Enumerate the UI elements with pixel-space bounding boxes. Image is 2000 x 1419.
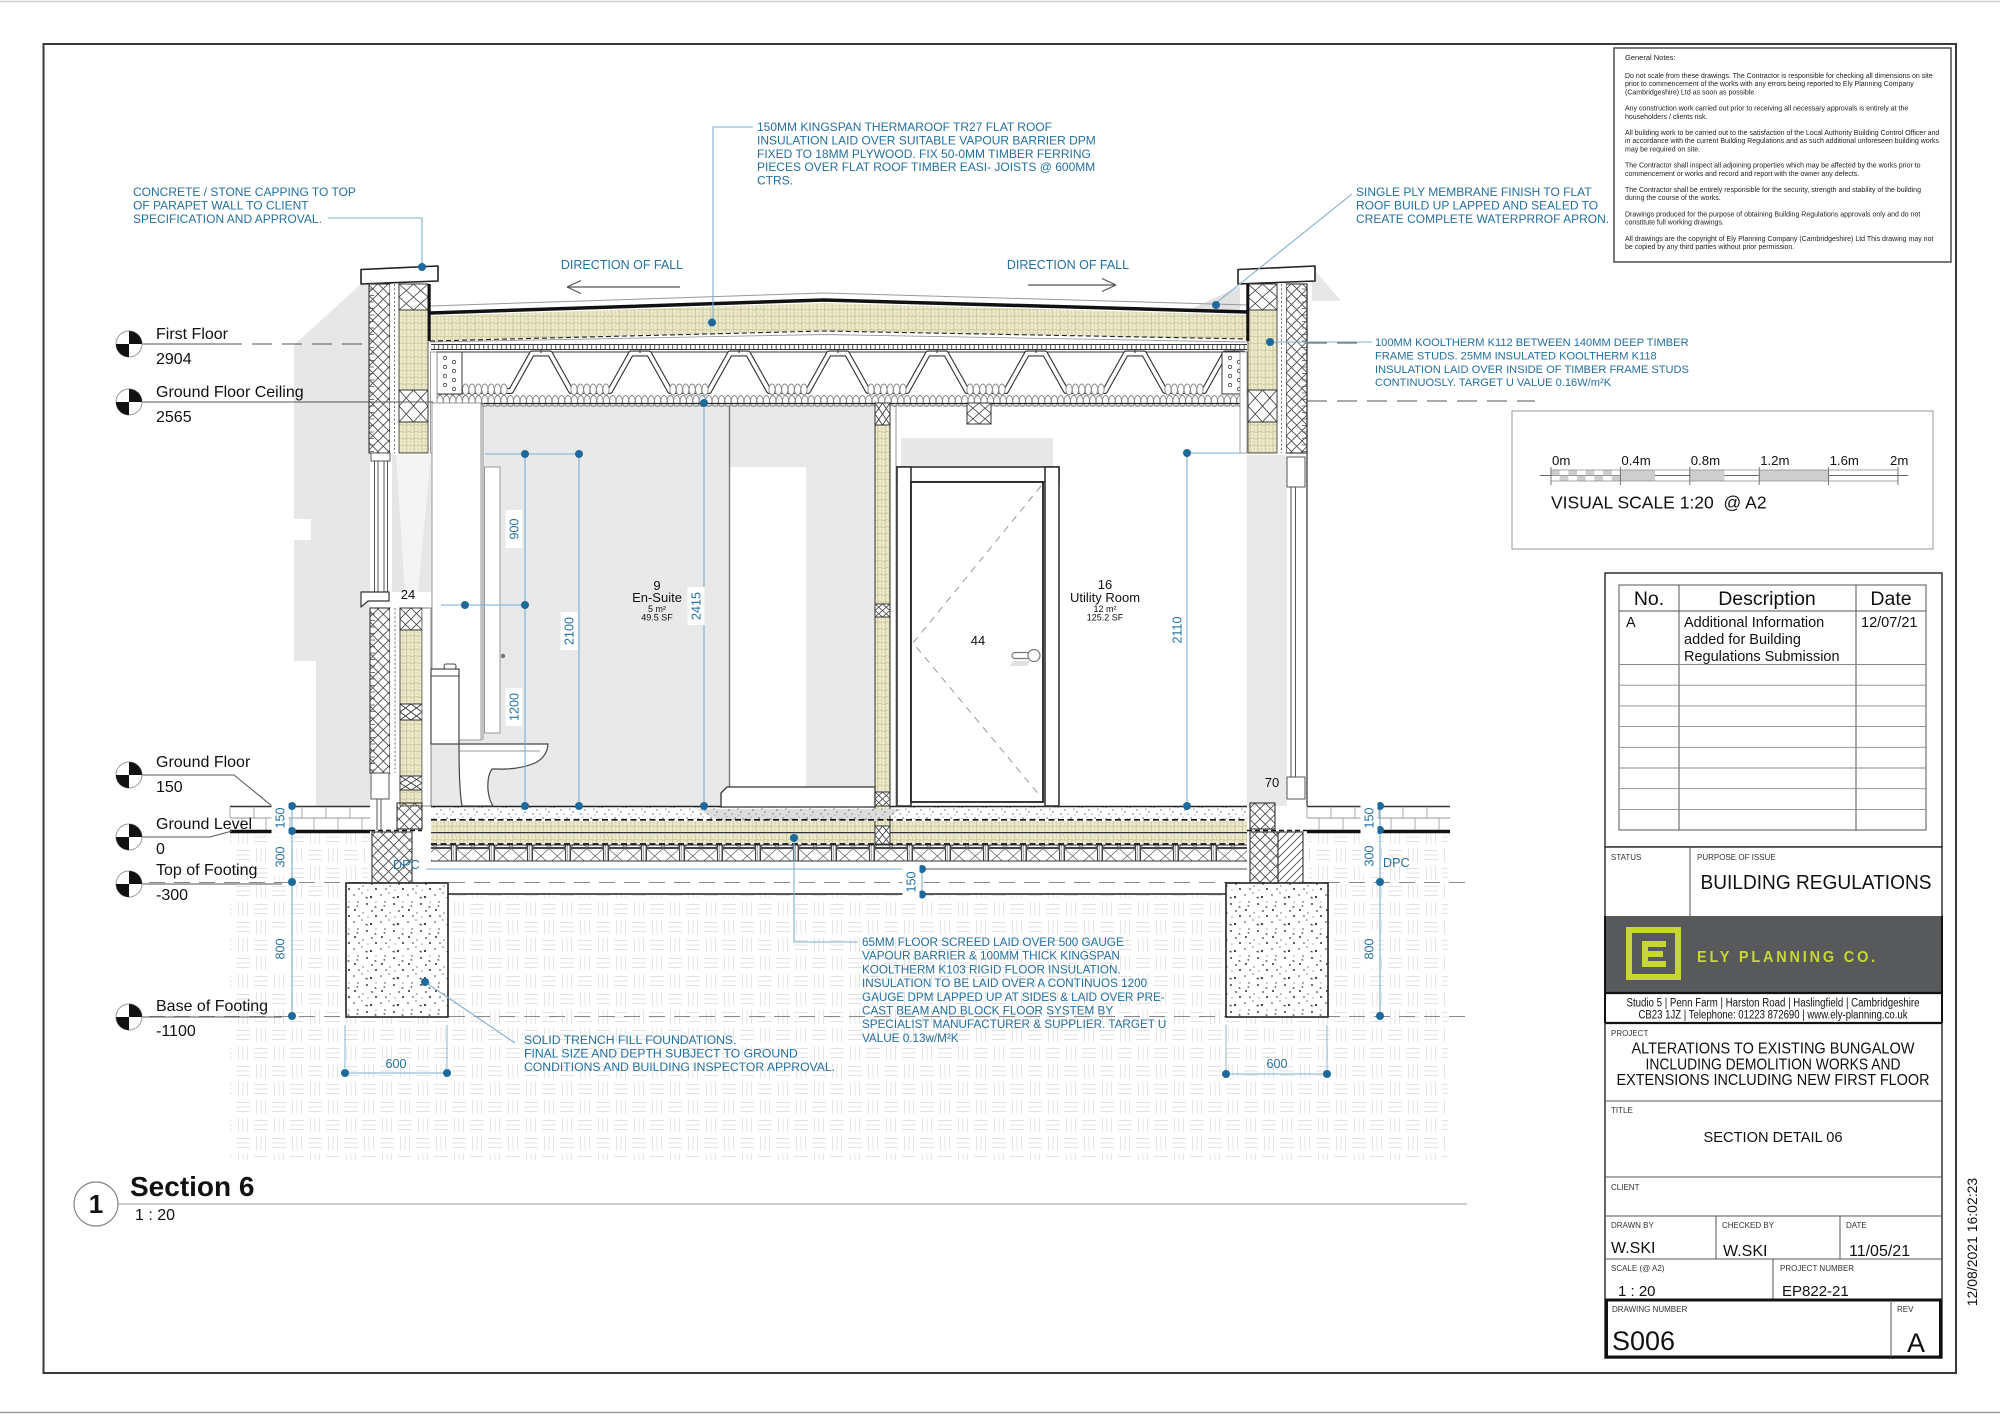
svg-text:600: 600 [1266,1057,1287,1071]
svg-text:may be required on site.: may be required on site. [1625,146,1700,153]
svg-text:300: 300 [274,846,288,867]
svg-text:FINAL SIZE AND DEPTH SUBJECT T: FINAL SIZE AND DEPTH SUBJECT TO GROUND [524,1047,798,1061]
svg-text:A: A [1907,1328,1925,1358]
svg-text:Do not scale from these drawin: Do not scale from these drawings. The Co… [1625,73,1933,80]
svg-text:12/07/21: 12/07/21 [1861,615,1917,631]
svg-text:VALUE 0.13w/M²K: VALUE 0.13w/M²K [862,1032,959,1045]
svg-text:W.SKI: W.SKI [1611,1240,1655,1257]
svg-text:150: 150 [905,871,919,892]
svg-text:INSULATION LAID OVER SUITABLE: INSULATION LAID OVER SUITABLE VAPOUR BAR… [757,133,1096,147]
svg-text:12/08/2021 16:02:23: 12/08/2021 16:02:23 [1964,1178,1980,1307]
svg-text:DPC: DPC [393,858,420,872]
svg-text:PROJECT NUMBER: PROJECT NUMBER [1780,1264,1854,1273]
svg-text:Regulations Submission: Regulations Submission [1684,649,1840,665]
svg-text:CREATE COMPLETE WATERPRROF APR: CREATE COMPLETE WATERPRROF APRON. [1356,212,1609,226]
svg-text:DPC: DPC [1383,856,1410,870]
svg-text:OF PARAPET WALL TO CLIENT: OF PARAPET WALL TO CLIENT [133,198,309,212]
svg-text:800: 800 [274,938,288,959]
svg-text:First Floor: First Floor [156,326,229,343]
svg-text:24: 24 [401,587,415,602]
svg-text:2565: 2565 [156,409,192,426]
svg-text:CLIENT: CLIENT [1611,1183,1640,1192]
svg-text:CTRS.: CTRS. [757,174,793,188]
svg-text:The Contractor shall be entire: The Contractor shall be entirely respons… [1625,187,1921,194]
svg-text:ELY PLANNING CO.: ELY PLANNING CO. [1697,949,1878,966]
svg-text:Ground Level: Ground Level [156,816,252,833]
svg-text:44: 44 [971,633,985,648]
svg-text:householders / clients risk.: householders / clients risk. [1625,114,1708,121]
svg-text:SCALE (@ A2): SCALE (@ A2) [1611,1264,1665,1273]
svg-text:DATE: DATE [1846,1221,1867,1230]
svg-text:SOLID TRENCH FILL FOUNDATIONS.: SOLID TRENCH FILL FOUNDATIONS. [524,1033,736,1047]
svg-text:2110: 2110 [1171,616,1185,643]
svg-text:2415: 2415 [690,592,704,620]
svg-text:2100: 2100 [563,617,577,645]
svg-text:1.6m: 1.6m [1830,453,1859,468]
svg-text:CONCRETE / STONE CAPPING TO TO: CONCRETE / STONE CAPPING TO TOP [133,185,356,199]
svg-text:constitute full working drawin: constitute full working drawings. [1625,220,1724,227]
svg-text:0.8m: 0.8m [1691,453,1720,468]
svg-text:SECTION DETAIL 06: SECTION DETAIL 06 [1704,1129,1843,1146]
svg-text:0m: 0m [1552,453,1570,468]
svg-text:125.2 SF: 125.2 SF [1087,613,1124,623]
svg-text:INSULATION LAID OVER INSIDE OF: INSULATION LAID OVER INSIDE OF TIMBER FR… [1375,364,1689,376]
svg-text:SPECIFICATION AND APPROVAL.: SPECIFICATION AND APPROVAL. [133,212,322,226]
svg-text:in accordance with the current: in accordance with the current Building … [1625,138,1940,145]
svg-text:SINGLE PLY MEMBRANE FINISH TO: SINGLE PLY MEMBRANE FINISH TO FLAT [1356,185,1592,199]
svg-text:1 : 20: 1 : 20 [1618,1283,1656,1300]
svg-text:W.SKI: W.SKI [1723,1243,1767,1260]
svg-text:11/05/21: 11/05/21 [1849,1243,1910,1260]
svg-text:INCLUDING DEMOLITION WORKS AND: INCLUDING DEMOLITION WORKS AND [1646,1057,1901,1074]
svg-text:added for Building: added for Building [1684,632,1801,648]
svg-text:BUILDING REGULATIONS: BUILDING REGULATIONS [1701,871,1932,894]
svg-text:VISUAL SCALE 1:20 @ A2: VISUAL SCALE 1:20 @ A2 [1551,493,1767,513]
svg-text:Description: Description [1718,588,1816,610]
svg-text:DIRECTION OF FALL: DIRECTION OF FALL [1007,258,1129,272]
svg-text:All drawings are the copyright: All drawings are the copyright of Ely Pl… [1625,236,1933,243]
svg-text:ALTERATIONS TO EXISTING BUNGAL: ALTERATIONS TO EXISTING BUNGALOW [1632,1041,1916,1058]
svg-text:FRAME STUDS. 25MM INSULATED KO: FRAME STUDS. 25MM INSULATED KOOLTHERM K1… [1375,350,1657,362]
svg-text:1200: 1200 [508,693,522,721]
svg-text:The Contractor shall inspect a: The Contractor shall inspect all adjoini… [1625,163,1921,170]
svg-text:PIECES OVER FLAT ROOF TIMBER E: PIECES OVER FLAT ROOF TIMBER EASI- JOIST… [757,160,1095,174]
svg-text:-300: -300 [156,887,188,904]
svg-text:VAPOUR BARRIER & 100MM THICK K: VAPOUR BARRIER & 100MM THICK KINGSPAN [862,950,1120,963]
svg-text:EXTENSIONS INCLUDING NEW FIRST: EXTENSIONS INCLUDING NEW FIRST FLOOR [1617,1072,1930,1089]
svg-text:1 : 20: 1 : 20 [135,1207,175,1224]
svg-text:(Cambridgeshire) Ltd as soon a: (Cambridgeshire) Ltd as soon as possible… [1625,89,1756,96]
svg-text:Studio 5 | Penn Farm | Harston: Studio 5 | Penn Farm | Harston Road | Ha… [1627,998,1920,1010]
svg-text:800: 800 [1363,938,1377,959]
svg-text:commencement or works and reco: commencement or works and record and rep… [1625,171,1859,178]
svg-text:S006: S006 [1612,1326,1675,1356]
svg-text:150: 150 [1363,807,1377,828]
svg-text:0: 0 [156,841,165,858]
svg-text:-1100: -1100 [156,1023,196,1040]
svg-text:Ground Floor: Ground Floor [156,754,251,771]
svg-text:ROOF BUILD UP LAPPED AND SEALE: ROOF BUILD UP LAPPED AND SEALED TO [1356,199,1598,213]
svg-text:300: 300 [1363,845,1377,866]
svg-text:DIRECTION OF FALL: DIRECTION OF FALL [561,258,683,272]
svg-text:All building work to be carrie: All building work to be carried out to t… [1625,130,1939,137]
svg-text:SPECIALIST MANUFACTURER & SUPP: SPECIALIST MANUFACTURER & SUPPLIER. TARG… [862,1018,1166,1031]
svg-text:REV: REV [1897,1305,1914,1314]
svg-text:70: 70 [1265,775,1279,790]
svg-text:prior to commencement of the w: prior to commencement of the works with … [1625,81,1914,88]
svg-text:0.4m: 0.4m [1621,453,1650,468]
svg-text:EP822-21: EP822-21 [1782,1283,1849,1300]
svg-text:INSULATION TO BE LAID OVER A C: INSULATION TO BE LAID OVER A CONTINUOS 1… [862,977,1148,990]
svg-text:CONDITIONS AND BUILDING INSPEC: CONDITIONS AND BUILDING INSPECTOR APPROV… [524,1060,835,1074]
svg-text:No.: No. [1634,588,1664,610]
svg-text:STATUS: STATUS [1611,853,1641,862]
svg-text:DRAWING NUMBER: DRAWING NUMBER [1612,1305,1687,1314]
svg-text:CAST BEAM AND BLOCK FLOOR SYST: CAST BEAM AND BLOCK FLOOR SYSTEM BY [862,1005,1113,1018]
svg-text:Additional Information: Additional Information [1684,615,1824,631]
svg-text:1.2m: 1.2m [1760,453,1789,468]
svg-text:1: 1 [89,1189,103,1219]
svg-text:KOOLTHERM K103 RIGID FLOOR INS: KOOLTHERM K103 RIGID FLOOR INSULATION. [862,963,1121,976]
svg-text:Base of Footing: Base of Footing [156,998,268,1015]
svg-text:PROJECT: PROJECT [1611,1029,1648,1038]
svg-text:150MM KINGSPAN THERMAROOF TR27: 150MM KINGSPAN THERMAROOF TR27 FLAT ROOF [757,120,1052,134]
svg-text:General Notes:: General Notes: [1625,53,1675,62]
svg-text:Date: Date [1870,588,1911,610]
svg-text:Utility Room: Utility Room [1070,590,1140,605]
svg-text:900: 900 [508,518,522,539]
svg-text:150: 150 [156,779,183,796]
svg-text:Section 6: Section 6 [130,1171,254,1202]
svg-text:CONTINUOSLY. TARGET U VALUE 0.: CONTINUOSLY. TARGET U VALUE 0.16W/m²K [1375,377,1612,389]
svg-text:A: A [1626,615,1636,631]
svg-text:65MM FLOOR SCREED LAID OVER 50: 65MM FLOOR SCREED LAID OVER 500 GAUGE [862,936,1124,949]
svg-text:CHECKED BY: CHECKED BY [1722,1221,1775,1230]
svg-text:Drawings produced for the purp: Drawings produced for the purpose of obt… [1625,211,1920,218]
svg-text:150: 150 [274,807,288,828]
svg-text:Top of Footing: Top of Footing [156,862,257,879]
svg-text:DRAWN BY: DRAWN BY [1611,1221,1654,1230]
svg-text:49.5 SF: 49.5 SF [641,613,673,623]
svg-text:be copied by any third parties: be copied by any third parties without p… [1625,244,1794,251]
svg-text:2904: 2904 [156,351,192,368]
svg-text:600: 600 [385,1057,406,1071]
svg-text:CB23 1JZ | Telephone: 01223 87: CB23 1JZ | Telephone: 01223 872690 | www… [1639,1010,1908,1022]
svg-text:TITLE: TITLE [1611,1106,1633,1115]
svg-text:100MM KOOLTHERM K112 BETWEEN 1: 100MM KOOLTHERM K112 BETWEEN 140MM DEEP … [1375,337,1689,349]
svg-text:PURPOSE OF ISSUE: PURPOSE OF ISSUE [1697,853,1776,862]
svg-text:during the course of the works: during the course of the works. [1625,195,1721,202]
svg-text:En-Suite: En-Suite [632,590,682,605]
svg-text:2m: 2m [1890,453,1908,468]
svg-text:GAUGE DPM LAPPED UP AT SIDES &: GAUGE DPM LAPPED UP AT SIDES & LAID OVER… [862,991,1165,1004]
svg-text:FIXED TO 18MM PLYWOOD. FIX 50-: FIXED TO 18MM PLYWOOD. FIX 50-0MM TIMBER… [757,147,1091,161]
svg-text:Ground Floor Ceiling: Ground Floor Ceiling [156,384,304,401]
svg-text:Any construction work carried: Any construction work carried out prior … [1625,106,1908,113]
